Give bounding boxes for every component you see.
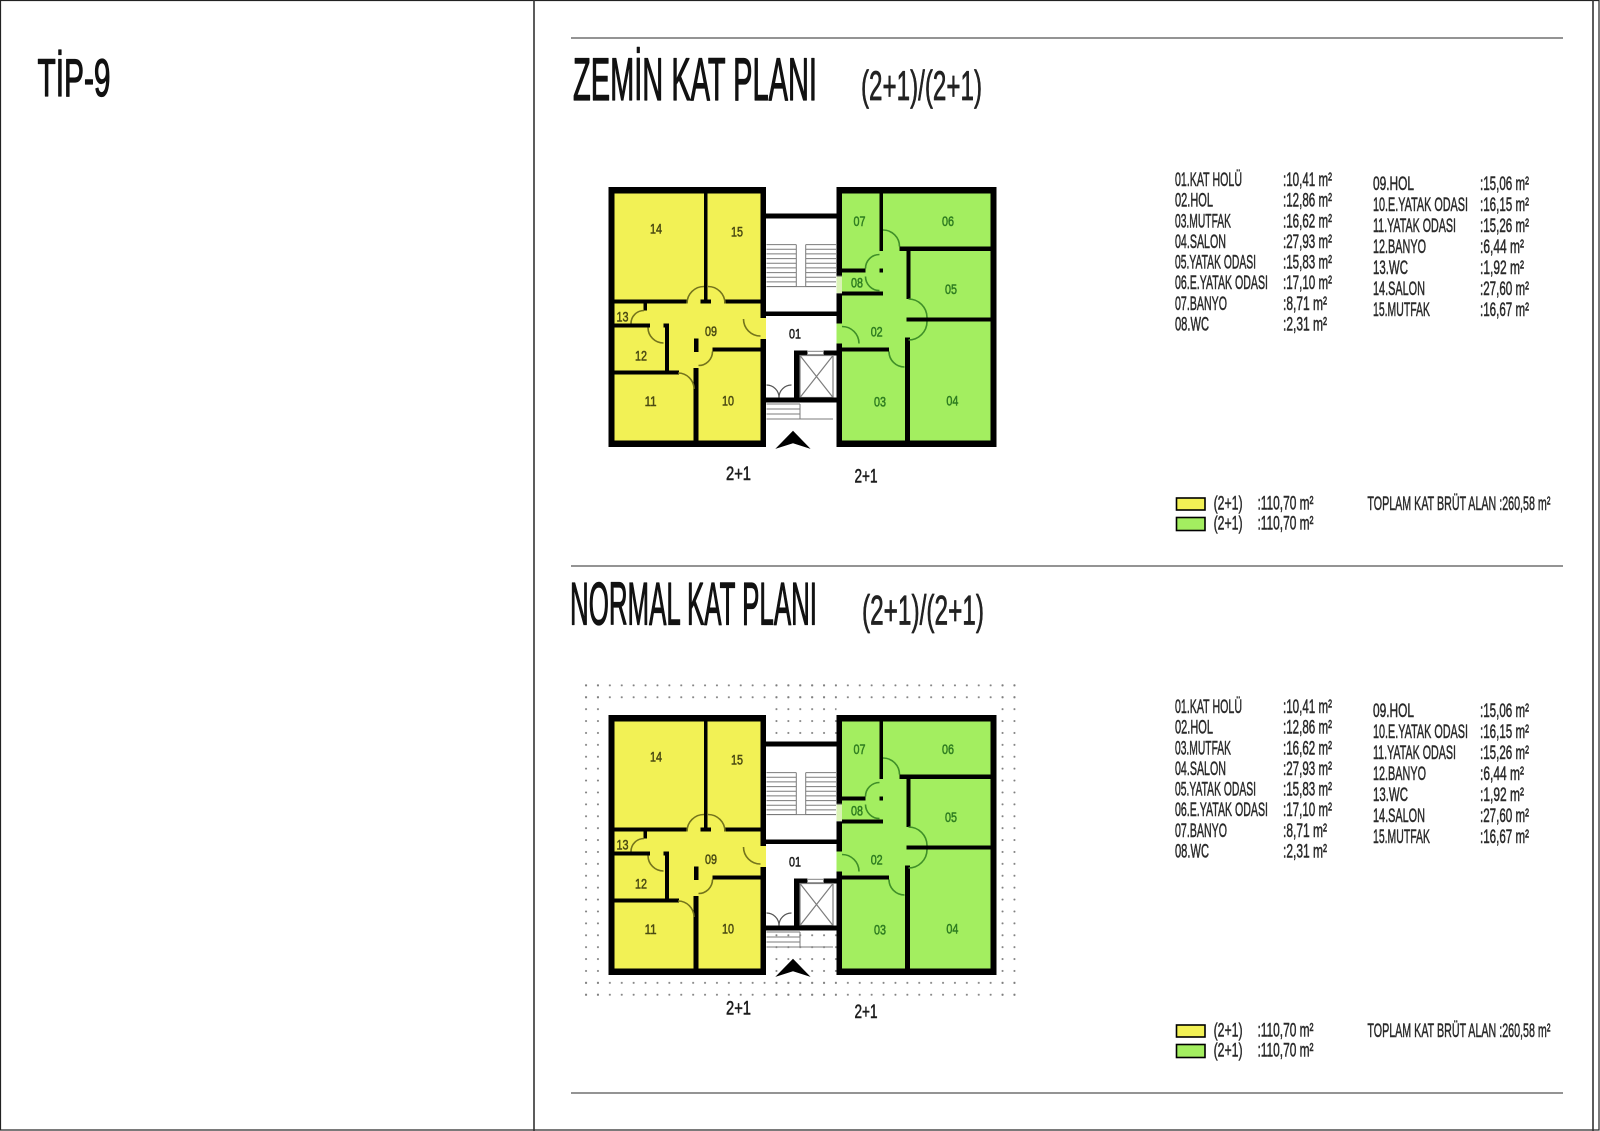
- svg-text:06.E.YATAK ODASI: 06.E.YATAK ODASI: [1175, 800, 1268, 821]
- svg-text::15,83 m²: :15,83 m²: [1283, 253, 1332, 274]
- svg-text:05.YATAK ODASI: 05.YATAK ODASI: [1175, 253, 1256, 274]
- svg-text:01.KAT HOLÜ: 01.KAT HOLÜ: [1175, 170, 1242, 191]
- svg-text:03.MUTFAK: 03.MUTFAK: [1175, 211, 1231, 232]
- svg-text:06.E.YATAK ODASI: 06.E.YATAK ODASI: [1175, 273, 1268, 294]
- svg-text:09.HOL: 09.HOL: [1373, 174, 1414, 195]
- svg-text:05.YATAK ODASI: 05.YATAK ODASI: [1175, 780, 1256, 801]
- svg-text::27,93 m²: :27,93 m²: [1283, 759, 1332, 780]
- svg-text::110,70 m²: :110,70 m²: [1258, 514, 1314, 535]
- svg-text:(2+1): (2+1): [1214, 514, 1243, 535]
- svg-text:02.HOL: 02.HOL: [1175, 191, 1213, 212]
- svg-text:05: 05: [945, 282, 957, 297]
- svg-text:(2+1): (2+1): [1214, 1041, 1243, 1062]
- svg-text:02: 02: [871, 325, 883, 340]
- svg-text::10,41 m²: :10,41 m²: [1283, 697, 1332, 718]
- svg-text::10,41 m²: :10,41 m²: [1283, 170, 1332, 191]
- svg-text:01.KAT HOLÜ: 01.KAT HOLÜ: [1175, 697, 1242, 718]
- svg-text:03: 03: [874, 394, 886, 409]
- svg-text:12.BANYO: 12.BANYO: [1373, 237, 1426, 258]
- svg-text:(2+1): (2+1): [1214, 494, 1243, 515]
- svg-text:07.BANYO: 07.BANYO: [1175, 821, 1227, 842]
- svg-text:14.SALON: 14.SALON: [1373, 806, 1425, 827]
- svg-text:10.E.YATAK ODASI: 10.E.YATAK ODASI: [1373, 195, 1468, 216]
- svg-text:14.SALON: 14.SALON: [1373, 279, 1425, 300]
- svg-text:TOPLAM KAT BRÜT ALAN :260,58 m: TOPLAM KAT BRÜT ALAN :260,58 m²: [1367, 494, 1550, 515]
- svg-text:06: 06: [942, 214, 954, 229]
- svg-text:11.YATAK ODASI: 11.YATAK ODASI: [1373, 216, 1456, 237]
- svg-text::6,44 m²: :6,44 m²: [1480, 764, 1524, 785]
- svg-text:04: 04: [946, 393, 958, 408]
- svg-text:02.HOL: 02.HOL: [1175, 718, 1213, 739]
- svg-text::6,44 m²: :6,44 m²: [1480, 237, 1524, 258]
- svg-text:04.SALON: 04.SALON: [1175, 232, 1226, 253]
- svg-text::16,15 m²: :16,15 m²: [1480, 195, 1529, 216]
- svg-text:01: 01: [789, 327, 801, 342]
- svg-text:15.MUTFAK: 15.MUTFAK: [1373, 827, 1430, 848]
- svg-text::17,10 m²: :17,10 m²: [1283, 800, 1332, 821]
- svg-text:2+1: 2+1: [855, 467, 878, 488]
- svg-text::2,31 m²: :2,31 m²: [1283, 315, 1327, 336]
- svg-text::16,62 m²: :16,62 m²: [1283, 738, 1332, 759]
- svg-text::27,93 m²: :27,93 m²: [1283, 232, 1332, 253]
- svg-text:11: 11: [645, 394, 657, 409]
- svg-text:09.HOL: 09.HOL: [1373, 701, 1414, 722]
- svg-text:13.WC: 13.WC: [1373, 258, 1408, 279]
- svg-text:12: 12: [635, 349, 647, 364]
- svg-text:(2+1)/(2+1): (2+1)/(2+1): [862, 587, 984, 634]
- svg-text::12,86 m²: :12,86 m²: [1283, 191, 1332, 212]
- svg-text:(2+1)/(2+1): (2+1)/(2+1): [861, 62, 982, 109]
- svg-text:09: 09: [705, 324, 717, 339]
- svg-text:10.E.YATAK ODASI: 10.E.YATAK ODASI: [1373, 722, 1468, 743]
- svg-text:TİP-9: TİP-9: [38, 49, 111, 108]
- svg-text::110,70 m²: :110,70 m²: [1258, 1021, 1314, 1042]
- svg-text::17,10 m²: :17,10 m²: [1283, 273, 1332, 294]
- svg-text::15,06 m²: :15,06 m²: [1480, 174, 1529, 195]
- svg-text::16,62 m²: :16,62 m²: [1283, 211, 1332, 232]
- svg-text:04.SALON: 04.SALON: [1175, 759, 1226, 780]
- svg-text:2+1: 2+1: [726, 999, 751, 1020]
- svg-text:08.WC: 08.WC: [1175, 842, 1209, 863]
- svg-text::16,67 m²: :16,67 m²: [1480, 300, 1529, 321]
- svg-text::12,86 m²: :12,86 m²: [1283, 718, 1332, 739]
- svg-text:08: 08: [851, 276, 863, 291]
- svg-text::110,70 m²: :110,70 m²: [1258, 494, 1314, 515]
- svg-text:08.WC: 08.WC: [1175, 315, 1209, 336]
- svg-text:15.MUTFAK: 15.MUTFAK: [1373, 300, 1430, 321]
- svg-text::16,67 m²: :16,67 m²: [1480, 827, 1529, 848]
- svg-text::15,06 m²: :15,06 m²: [1480, 701, 1529, 722]
- svg-text:2+1: 2+1: [855, 1002, 878, 1023]
- svg-text:(2+1): (2+1): [1214, 1021, 1243, 1042]
- svg-text:07.BANYO: 07.BANYO: [1175, 294, 1227, 315]
- svg-text::8,71 m²: :8,71 m²: [1283, 294, 1327, 315]
- svg-text:03.MUTFAK: 03.MUTFAK: [1175, 738, 1231, 759]
- svg-text:NORMAL KAT PLANI: NORMAL KAT PLANI: [570, 571, 817, 638]
- svg-text:12.BANYO: 12.BANYO: [1373, 764, 1426, 785]
- svg-text::15,83 m²: :15,83 m²: [1283, 780, 1332, 801]
- svg-text::15,26 m²: :15,26 m²: [1480, 743, 1529, 764]
- svg-text:13.WC: 13.WC: [1373, 785, 1408, 806]
- svg-text:15: 15: [731, 225, 743, 240]
- svg-text::8,71 m²: :8,71 m²: [1283, 821, 1327, 842]
- svg-text:13: 13: [617, 309, 629, 324]
- svg-text::110,70 m²: :110,70 m²: [1258, 1041, 1314, 1062]
- svg-text::27,60 m²: :27,60 m²: [1480, 806, 1529, 827]
- svg-text:2+1: 2+1: [726, 464, 751, 485]
- svg-text::16,15 m²: :16,15 m²: [1480, 722, 1529, 743]
- svg-text:11.YATAK ODASI: 11.YATAK ODASI: [1373, 743, 1456, 764]
- svg-text::1,92 m²: :1,92 m²: [1480, 258, 1524, 279]
- svg-text:07: 07: [854, 214, 866, 229]
- svg-text:10: 10: [722, 394, 734, 409]
- svg-text::15,26 m²: :15,26 m²: [1480, 216, 1529, 237]
- svg-text:14: 14: [650, 222, 662, 237]
- svg-text::2,31 m²: :2,31 m²: [1283, 842, 1327, 863]
- svg-text:TOPLAM KAT BRÜT ALAN :260,58 m: TOPLAM KAT BRÜT ALAN :260,58 m²: [1367, 1021, 1550, 1042]
- svg-text::27,60 m²: :27,60 m²: [1480, 279, 1529, 300]
- svg-text::1,92 m²: :1,92 m²: [1480, 785, 1524, 806]
- svg-text:ZEMİN KAT PLANI: ZEMİN KAT PLANI: [573, 46, 817, 113]
